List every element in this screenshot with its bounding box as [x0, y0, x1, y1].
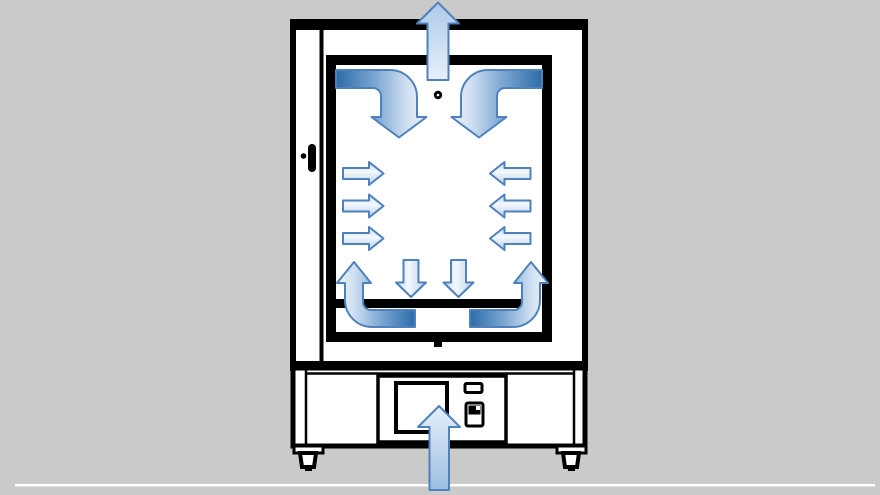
power-switch-notch	[476, 406, 480, 410]
foot-pad	[300, 453, 316, 467]
indicator-slot	[465, 384, 482, 393]
chamber-bottom-tab	[434, 340, 442, 347]
foot-base	[568, 467, 575, 471]
vent-hole-center	[437, 94, 440, 97]
foot-pad	[563, 453, 579, 467]
door-handle-bar	[308, 144, 316, 172]
door-handle-pin	[301, 153, 307, 159]
foot-base	[305, 467, 312, 471]
diagram-canvas	[0, 0, 880, 495]
oven-airflow-diagram	[0, 0, 880, 495]
power-switch	[466, 403, 483, 426]
